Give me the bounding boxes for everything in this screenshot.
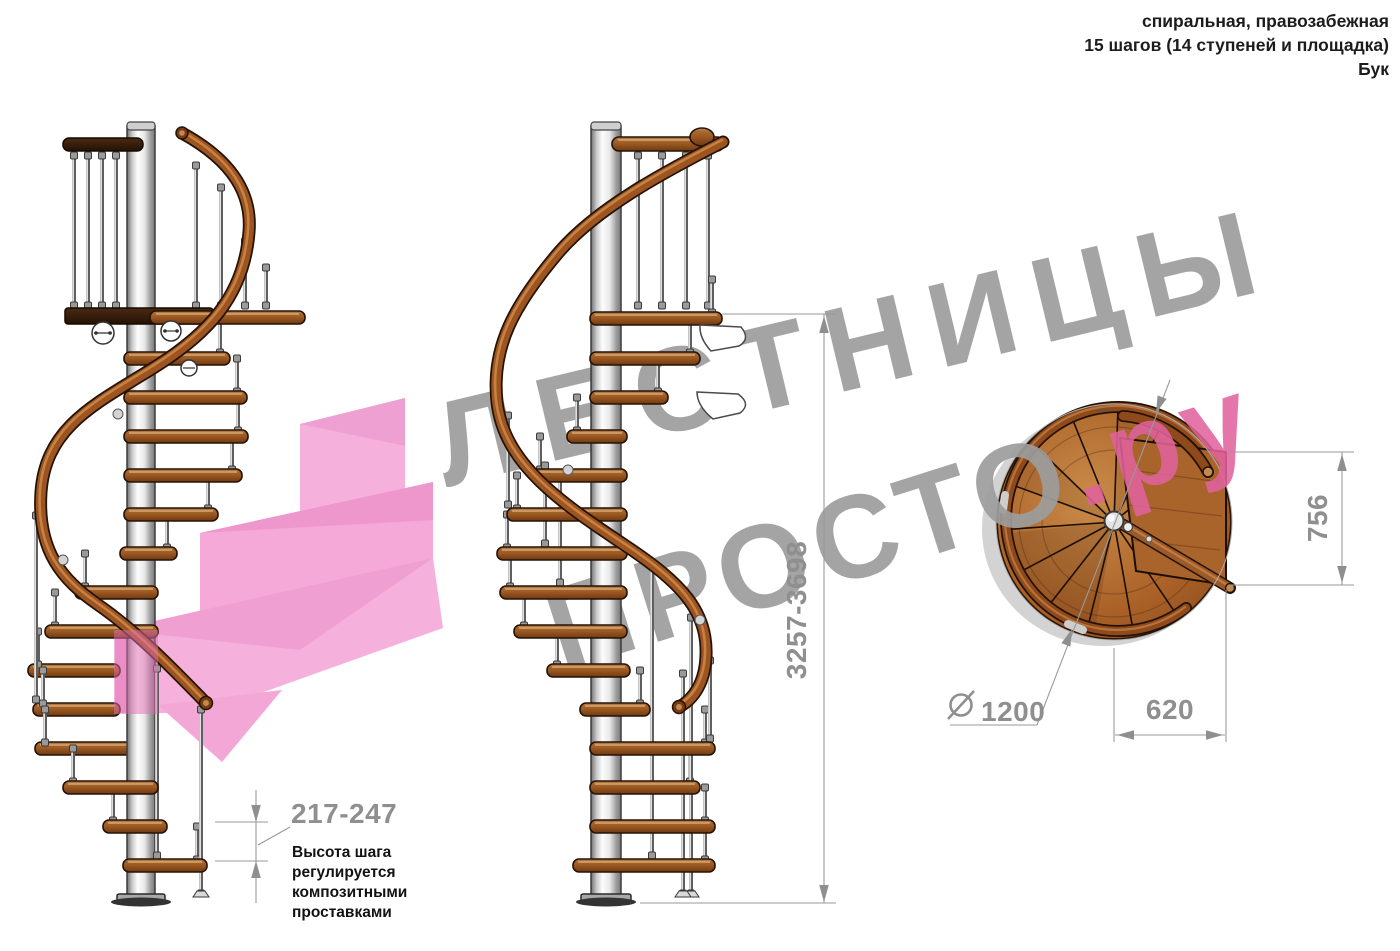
watermark-suffix: .ру [1050,349,1274,533]
spacer-highlight [114,630,158,714]
pink-arrow-graphic [115,398,443,762]
dim-landing-depth-label: 756 [1302,494,1333,542]
note-line3: композитными [292,884,407,901]
spacer-note: Высота шага регулируется композитными пр… [292,844,407,921]
header-material: Бук [1358,59,1389,79]
dim-total-height-label: 3257-3698 [781,541,812,679]
dim-diameter-label: 1200 [981,696,1045,727]
technical-drawing-canvas: ЛЕСТНИЦЫ ПРОСТО.ру [0,0,1400,951]
header-steps: 15 шагов (14 ступеней и площадка) [1084,35,1389,55]
left-top-rail [63,138,143,151]
note-line1: Высота шага [292,844,392,861]
dim-landing-width-label: 620 [1146,694,1194,725]
spiral-staircase-drawing-page: ЛЕСТНИЦЫ ПРОСТО.ру [0,0,1400,951]
left-side-view [28,122,305,907]
note-line4: проставками [292,904,392,921]
diameter-symbol [948,691,974,719]
dim-step-height-label: 217-247 [291,798,397,829]
header-type: спиральная, правозабежная [1142,11,1389,31]
header: спиральная, правозабежная 15 шагов (14 с… [1084,11,1389,79]
note-line2: регулируется [292,864,395,881]
